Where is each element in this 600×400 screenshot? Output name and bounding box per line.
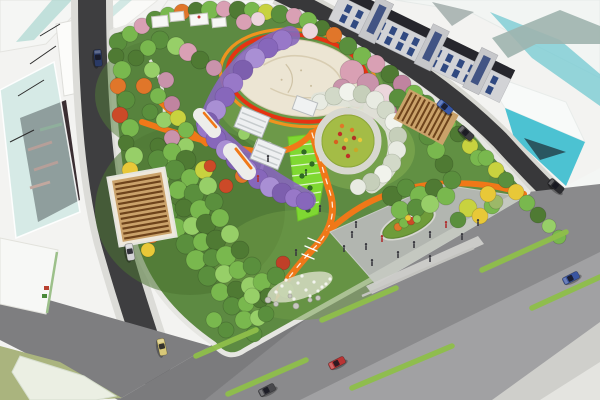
flower-dot — [354, 148, 358, 152]
flower-dot — [342, 146, 346, 150]
tree-canopy — [117, 91, 135, 109]
blossom-canopy — [350, 179, 366, 195]
tree-canopy — [142, 104, 158, 120]
flower-dot — [338, 132, 342, 136]
white-flower — [300, 274, 303, 277]
tree-canopy — [251, 12, 265, 26]
flower-bed — [322, 115, 374, 167]
white-flower — [328, 277, 331, 280]
car-highlight — [94, 50, 100, 54]
person-head — [477, 219, 479, 221]
person-head — [351, 231, 353, 233]
flower-dot — [344, 138, 348, 142]
tree-canopy — [158, 72, 174, 88]
flower-dot — [334, 140, 338, 144]
tree-canopy — [141, 243, 155, 257]
flower-dot — [358, 138, 362, 142]
person-head — [371, 259, 373, 261]
tree-canopy — [244, 288, 260, 304]
white-flower — [296, 281, 299, 284]
white-flower — [274, 290, 277, 293]
tree-canopy — [530, 207, 546, 223]
tree-canopy — [211, 283, 229, 301]
tree-canopy — [211, 209, 229, 227]
tree-canopy — [199, 177, 217, 195]
person-head — [413, 241, 415, 243]
tree-canopy — [310, 162, 315, 167]
tree-canopy — [204, 160, 216, 172]
rock — [288, 294, 292, 298]
flower-dot — [352, 136, 356, 140]
white-flower — [312, 280, 315, 283]
wisteria-canopy — [296, 192, 314, 210]
white-flower — [288, 290, 291, 293]
tree-canopy — [519, 195, 535, 211]
tree-canopy — [113, 61, 131, 79]
tree-canopy — [205, 193, 223, 211]
rock — [274, 302, 279, 307]
tree-canopy — [150, 88, 166, 104]
tree-canopy — [231, 241, 249, 259]
tree-canopy — [128, 50, 144, 66]
tree-canopy — [243, 257, 261, 275]
render-canvas — [0, 0, 600, 400]
person-head — [429, 231, 431, 233]
tree-canopy — [302, 150, 307, 155]
flower-dot — [340, 124, 344, 128]
car-glass — [127, 248, 134, 254]
tree-canopy — [121, 119, 139, 137]
tree-canopy — [326, 27, 342, 43]
tree-canopy — [302, 23, 318, 39]
person-head — [461, 233, 463, 235]
white-flower — [284, 278, 287, 281]
tree-canopy — [206, 312, 222, 328]
rock — [308, 298, 312, 302]
tree-canopy — [206, 60, 222, 76]
park-masterplan-render — [0, 0, 600, 400]
tree-canopy — [178, 122, 194, 138]
person-head — [305, 169, 307, 171]
pergola-southwest — [107, 167, 176, 246]
rock — [293, 303, 299, 309]
tree-canopy — [480, 186, 496, 202]
person-head — [397, 251, 399, 253]
person-head — [445, 221, 447, 223]
person-head — [319, 205, 321, 207]
person-head — [295, 249, 297, 251]
tree-canopy — [421, 195, 439, 213]
tree-canopy — [164, 96, 180, 112]
person-head — [365, 243, 367, 245]
white-flower — [320, 285, 323, 288]
white-flower — [308, 294, 311, 297]
tree-canopy — [443, 171, 461, 189]
person-head — [355, 221, 357, 223]
tree-canopy — [236, 14, 252, 30]
tree-canopy — [136, 78, 152, 94]
person-head — [381, 235, 383, 237]
tree-canopy — [413, 215, 421, 223]
tree-canopy — [308, 186, 313, 191]
tree-canopy — [219, 179, 233, 193]
white-flower — [324, 282, 327, 285]
white-flower — [292, 297, 295, 300]
person-head — [257, 175, 259, 177]
tree-canopy — [437, 187, 455, 205]
person-head — [267, 155, 269, 157]
tree-canopy — [221, 225, 239, 243]
person-head — [429, 255, 431, 257]
person-head — [343, 245, 345, 247]
rock — [265, 297, 271, 303]
tree-canopy — [258, 306, 274, 322]
car-glass — [95, 54, 101, 60]
white-flower — [304, 288, 307, 291]
circular-garden — [318, 111, 378, 171]
tree-canopy — [156, 112, 172, 128]
flower-dot — [346, 154, 350, 158]
white-flower — [280, 284, 283, 287]
tree-canopy — [542, 219, 556, 233]
tree-canopy — [144, 62, 160, 78]
white-flower — [316, 289, 319, 292]
tree-canopy — [450, 212, 466, 228]
flower-dot — [350, 128, 354, 132]
rock — [316, 296, 321, 301]
tree-canopy — [300, 174, 305, 179]
tree-canopy — [405, 215, 411, 221]
